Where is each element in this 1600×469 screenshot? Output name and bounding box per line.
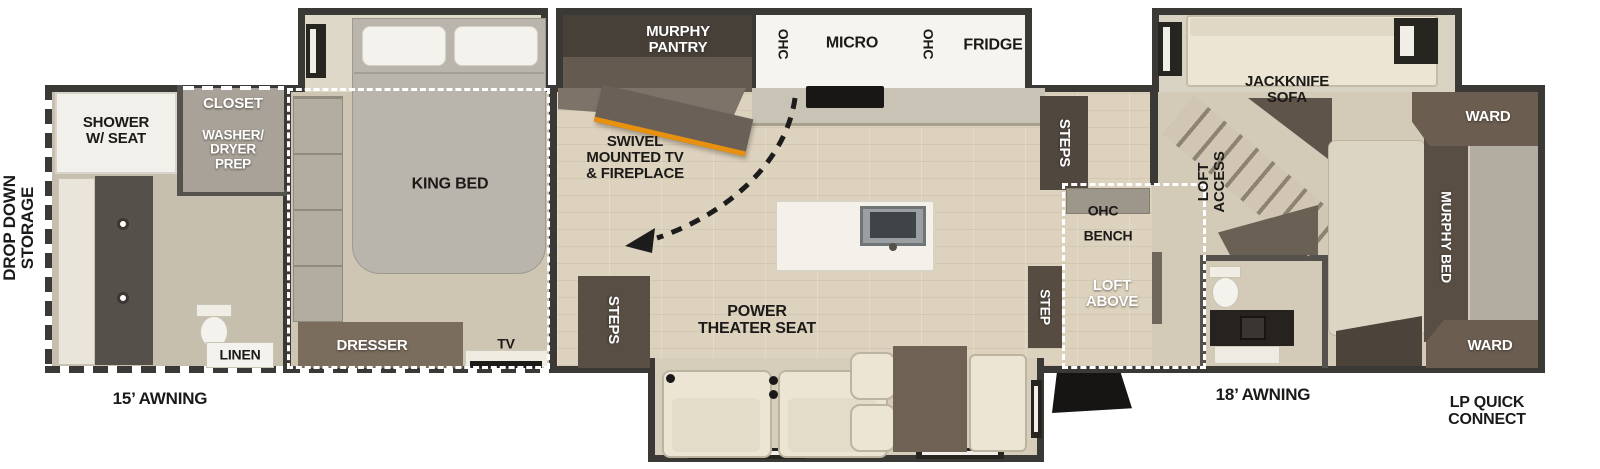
label-loft-above: LOFT ABOVE — [1086, 278, 1138, 310]
king-slide-window-left — [306, 24, 326, 78]
floorplan: DROP DOWN STORAGE 15’ AWNING 18’ AWNING … — [0, 0, 1600, 469]
slide-side-window — [1031, 380, 1042, 438]
label-steps-right: STEPS — [1056, 119, 1072, 167]
sofa-window-left — [1158, 22, 1182, 76]
label-steps-left: STEPS — [605, 296, 621, 344]
entry-step — [1052, 373, 1132, 413]
label-loft-bench: BENCH — [1084, 229, 1133, 244]
label-step: STEP — [1038, 289, 1053, 325]
dinette-bench — [969, 354, 1027, 452]
label-power-theater-seat: POWER THEATER SEAT — [698, 304, 816, 338]
bedroom-slide-dashed-outline — [287, 88, 550, 369]
label-jackknife-sofa: JACKKNIFE SOFA — [1245, 74, 1329, 106]
vanity-cabinet — [58, 178, 95, 365]
front-cap-band — [1470, 146, 1538, 320]
label-swivel-tv: SWIVEL MOUNTED TV & FIREPLACE — [586, 134, 684, 182]
wall-living-front — [1150, 85, 1158, 185]
king-bed-pillow-1 — [362, 26, 446, 66]
label-lp-quick-connect: LP QUICK CONNECT — [1448, 395, 1526, 429]
label-awning-right: 18’ AWNING — [1216, 386, 1311, 404]
label-king-bed: KING BED — [412, 177, 489, 194]
loft-dashed-outline — [1062, 183, 1206, 369]
island-sink-basin — [870, 212, 916, 238]
vanity-sink-2 — [117, 292, 129, 304]
seat-cupholder-2 — [769, 376, 778, 385]
vanity-counter — [95, 176, 153, 365]
dinette-table — [893, 346, 967, 452]
label-murphy-pantry: MURPHY PANTRY — [646, 24, 710, 56]
label-shower: SHOWER W/ SEAT — [83, 115, 149, 147]
label-fridge: FRIDGE — [963, 38, 1022, 55]
seat-cupholder-3 — [769, 390, 778, 399]
king-bed-seam — [354, 72, 544, 74]
label-ward-top: WARD — [1465, 109, 1510, 125]
label-micro: MICRO — [826, 36, 878, 53]
midbath-toilet-bowl — [1212, 277, 1239, 308]
theater-seat-1-cushion — [672, 398, 760, 452]
rear-wall-dashed — [45, 85, 52, 373]
island-sink-faucet — [889, 243, 897, 251]
label-linen: LINEN — [219, 348, 260, 363]
label-ward-bottom: WARD — [1467, 338, 1512, 354]
dinette-chair-2 — [850, 404, 896, 452]
label-drop-down-storage: DROP DOWN STORAGE — [1, 175, 37, 281]
label-awning-left: 15’ AWNING — [113, 390, 208, 408]
label-loft-access: LOFT ACCESS — [1196, 151, 1228, 212]
dinette-chair-1 — [850, 352, 896, 400]
king-bed-pillow-2 — [454, 26, 538, 66]
label-tv: TV — [497, 337, 515, 352]
label-closet: CLOSET — [203, 96, 263, 112]
vanity-sink-1 — [117, 218, 129, 230]
label-murphy-bed: MURPHY BED — [1439, 191, 1454, 283]
sofa-window-right — [1394, 18, 1438, 64]
label-loft-ohc: OHC — [1088, 204, 1119, 219]
label-ohc-left: OHC — [776, 29, 791, 60]
midbath-sink — [1240, 316, 1266, 340]
midbath-base-cabinet — [1214, 346, 1280, 364]
seat-cupholder-1 — [666, 374, 675, 383]
label-washer-dryer: WASHER/ DRYER PREP — [202, 129, 264, 172]
murphy-bed-mattress — [1328, 140, 1426, 336]
label-ohc-right: OHC — [921, 29, 936, 60]
label-dresser: DRESSER — [336, 338, 407, 354]
closet-dashed-edge — [183, 86, 284, 90]
